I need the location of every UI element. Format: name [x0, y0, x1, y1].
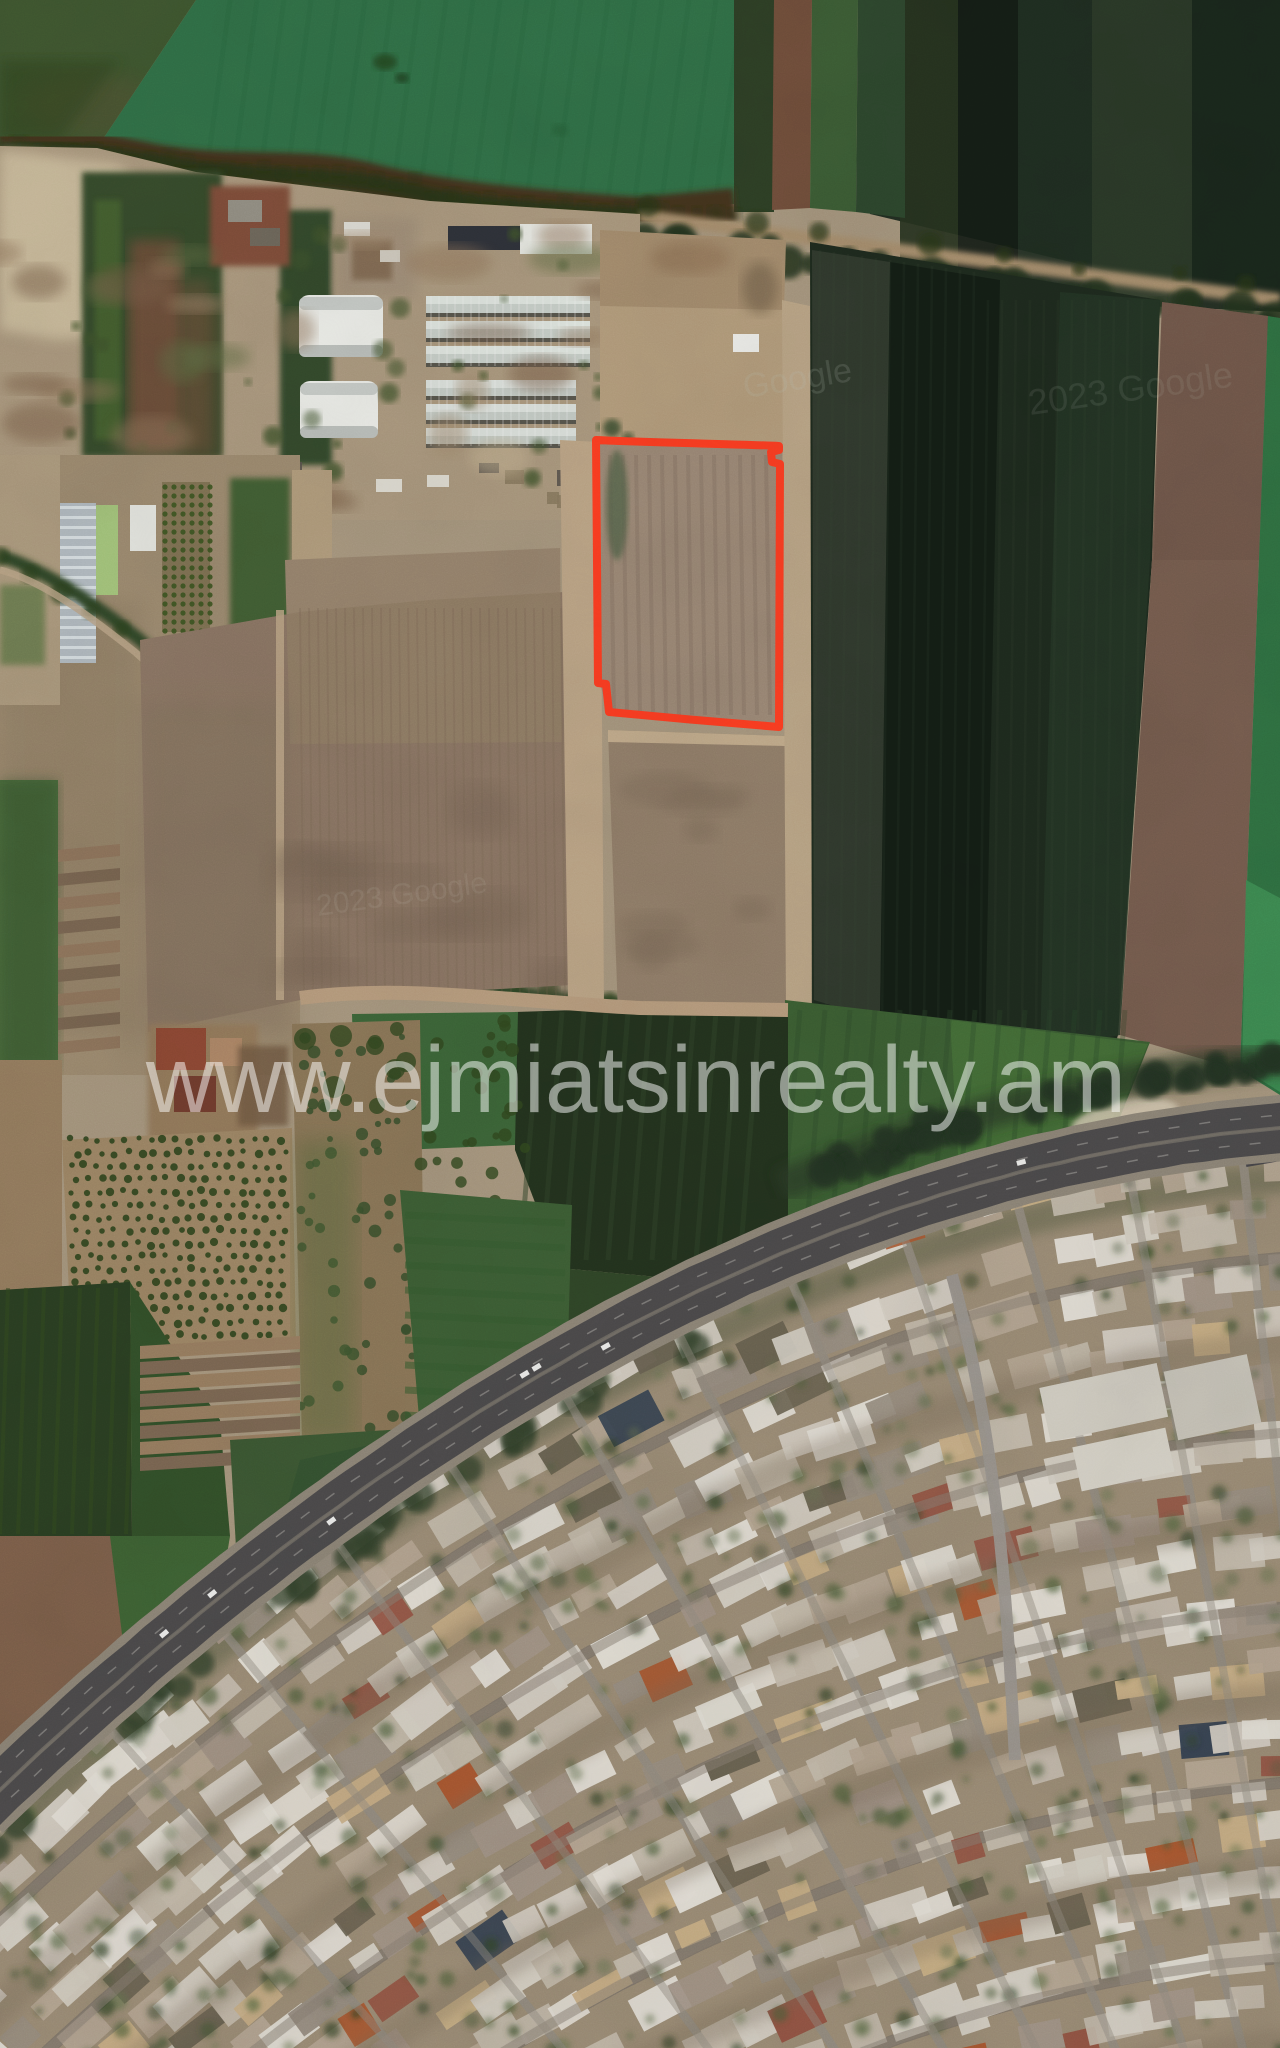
svg-text:www.ejmiatsinrealty.am: www.ejmiatsinrealty.am [145, 1027, 1126, 1133]
